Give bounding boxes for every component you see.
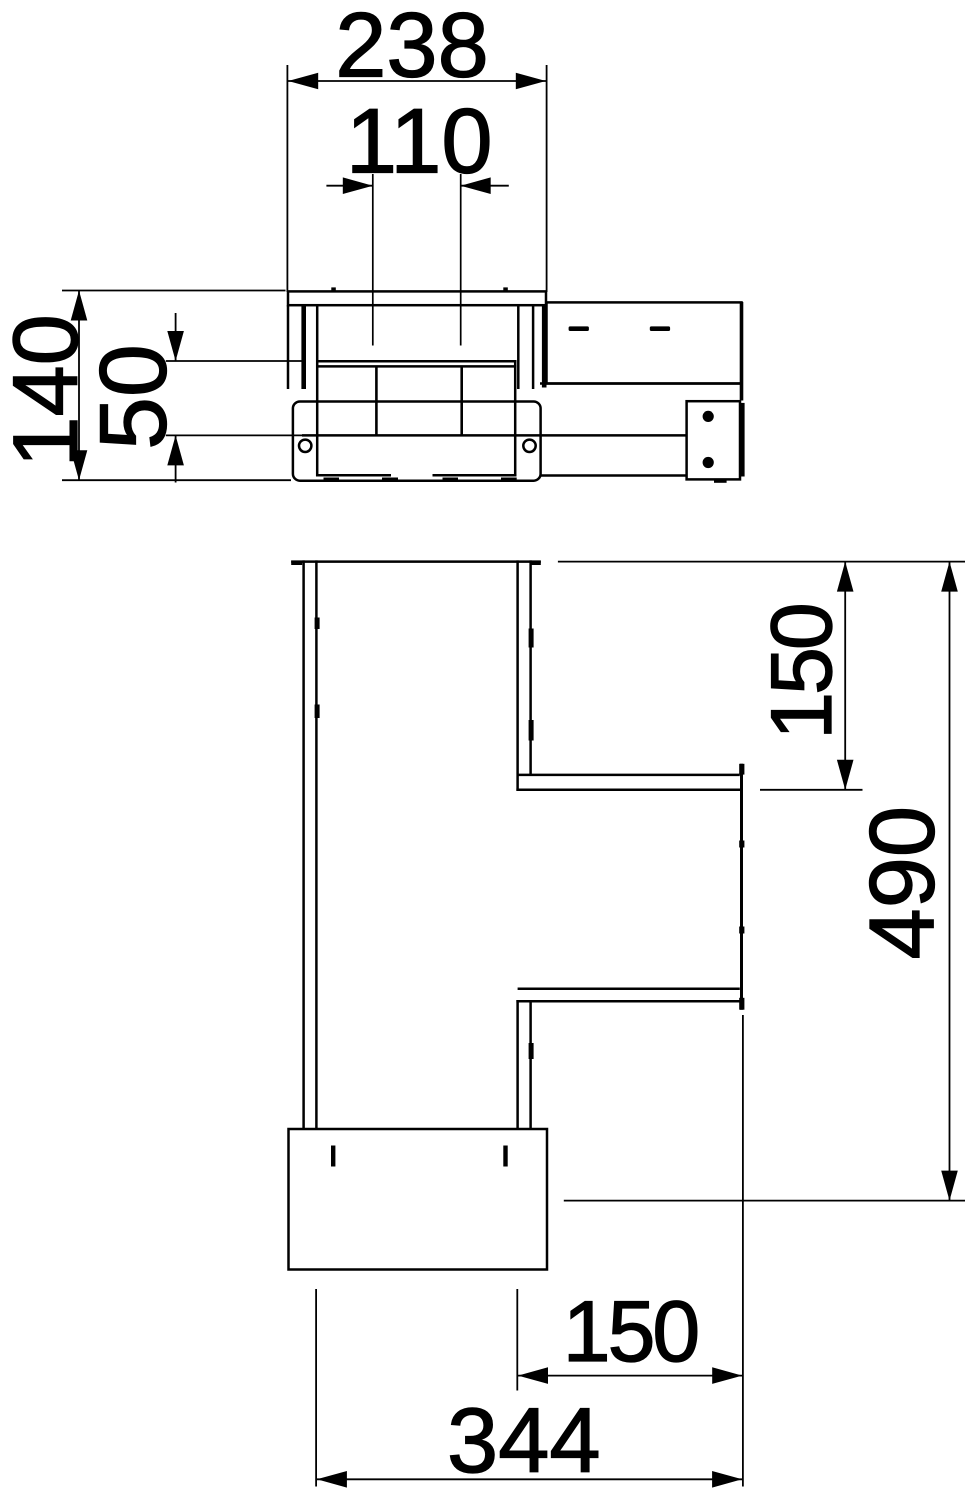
svg-text:344: 344 xyxy=(447,1390,601,1492)
svg-text:490: 490 xyxy=(852,806,954,960)
svg-text:110: 110 xyxy=(346,91,493,193)
svg-text:150: 150 xyxy=(754,605,850,740)
svg-text:150: 150 xyxy=(563,1284,698,1380)
svg-text:50: 50 xyxy=(81,344,187,450)
svg-text:238: 238 xyxy=(335,0,489,97)
